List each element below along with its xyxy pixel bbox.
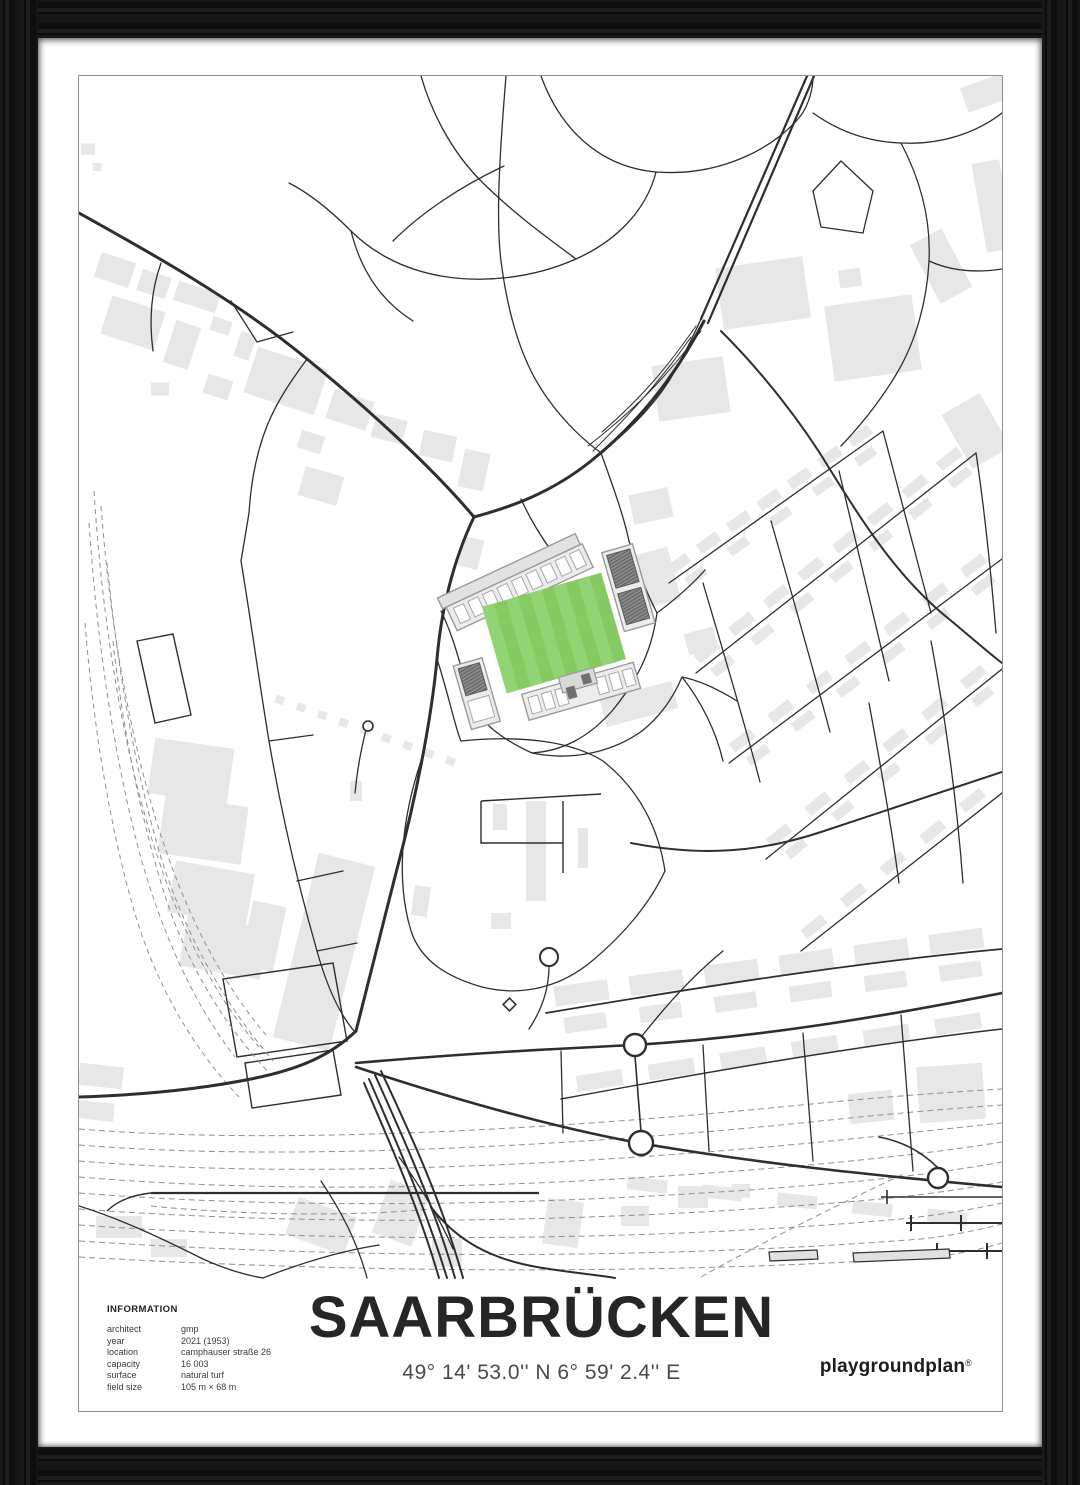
picture-frame-right [1042,0,1080,1485]
mat-board: INFORMATION architectgmp year2021 (1953)… [38,38,1042,1447]
page-title: SAARBRÜCKEN [79,1288,1004,1349]
picture-frame-left [0,0,38,1485]
stadium-west-stand [453,658,500,730]
framed-poster-photo: INFORMATION architectgmp year2021 (1953)… [0,0,1080,1485]
stadium-street-map [79,76,1002,1279]
picture-frame-bottom [0,1447,1080,1485]
brand-logo: playgroundplan® [820,1356,972,1378]
poster-print: INFORMATION architectgmp year2021 (1953)… [78,75,1003,1412]
picture-frame-top [0,0,1080,38]
